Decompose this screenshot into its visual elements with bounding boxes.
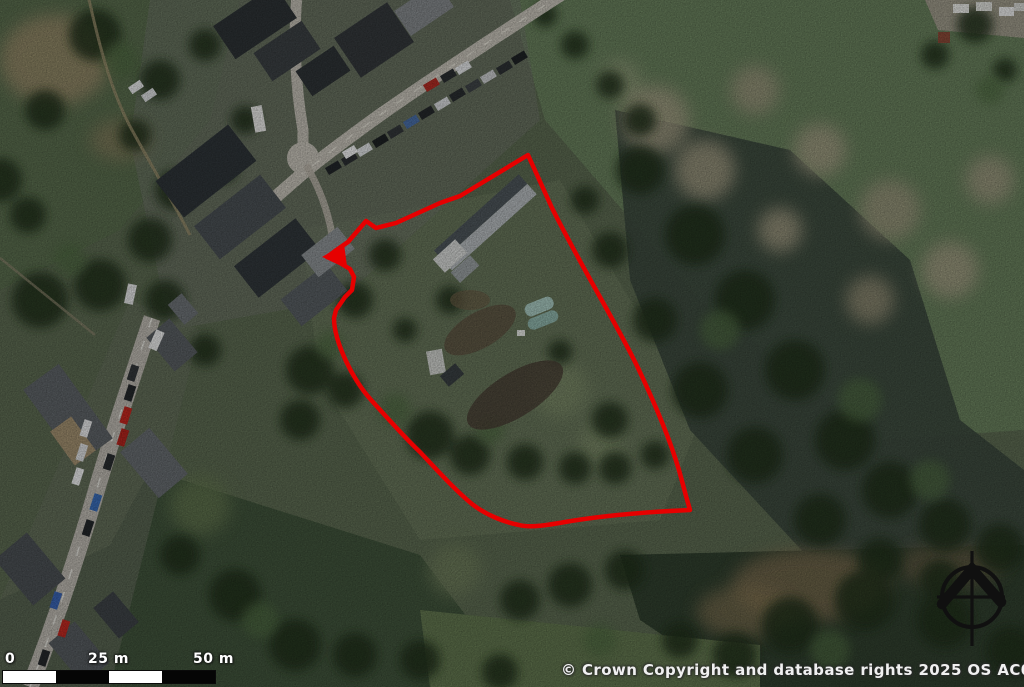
copyright-attribution: © Crown Copyright and database rights 20… [561,661,1024,679]
scale-segment [162,671,215,683]
aerial-map: 0 25 m 50 m © Crown Copyright and databa… [0,0,1024,687]
scale-label-50m: 50 m [193,651,234,667]
scale-label-25m: 25 m [88,651,129,667]
scale-segment [56,671,109,683]
scale-label-zero: 0 [5,651,15,667]
scale-segment [3,671,56,683]
photo-grain-overlay [0,0,1024,687]
scale-segment [109,671,162,683]
scale-bar-blocks [2,670,216,684]
aerial-imagery [0,0,1024,687]
